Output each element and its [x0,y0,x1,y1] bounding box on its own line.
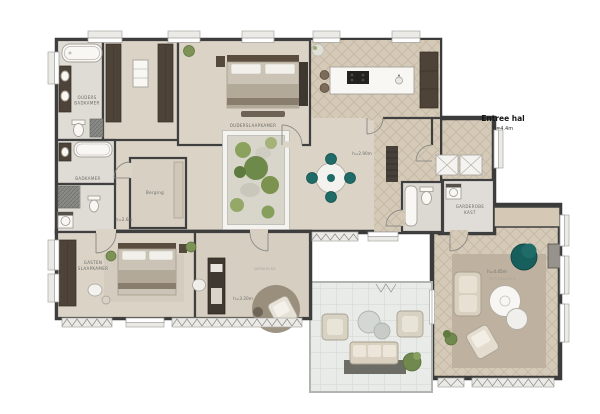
window [48,52,59,84]
window [392,31,420,43]
dining-chair [345,173,356,184]
table-centerpiece [327,174,335,182]
teal-armchair-cushion [522,244,537,259]
dining-chair [307,173,318,184]
bed-runner [118,283,176,289]
window [313,31,340,43]
bar-stool [320,71,329,80]
dining-height-label: h=2.90m [352,151,372,156]
entree-hall-label: Entree hal [481,114,525,123]
toilet-icon [90,200,99,212]
garden-bush [230,198,244,212]
garden-tree [244,156,268,180]
window [494,130,503,168]
desk-chair [193,279,206,291]
plant-icon [106,251,116,261]
faucet [398,75,400,77]
tv-sideboard [299,62,308,106]
floor-plan-drawing: Entree hal h=4.4m OUDERSLAAPKAMER OUDERS… [0,0,600,414]
garden-bush [262,206,275,219]
sofa-cushion [459,276,477,293]
burner [362,79,365,82]
desk-papers [211,264,223,272]
window [48,240,59,270]
nightstand-icon [179,244,187,253]
plant-leaf [413,352,421,360]
wall-cabinet-band [494,207,560,227]
window [126,318,164,327]
wardrobe-label-line1: GARDEROBE [456,204,485,209]
bathroom-label: BADKAMER [75,176,100,181]
round-chair [88,284,102,296]
burner [362,74,365,77]
window [88,31,122,43]
plant-icon [312,44,324,56]
storage-furniture [174,162,183,218]
storage-label: Berging [146,190,164,195]
folding-door [62,318,112,327]
plant-icon [186,242,196,252]
folding-door [312,232,358,241]
round-coffee-table [374,323,390,339]
bar-stool [320,84,329,93]
washer-panel [58,212,73,216]
folding-door [172,318,302,327]
living-room-label: WOONKAMER [489,277,516,281]
tall-cabinet [420,52,438,108]
burner [351,79,354,82]
window [368,232,398,241]
desk-papers [211,288,222,304]
office-label: WERKPLEK [254,267,276,271]
hall-height-label: h=2.6m [116,217,133,222]
burner [351,74,354,77]
sink-icon [62,148,69,157]
shower-icon [90,119,103,137]
media-niche [548,244,560,268]
courtyard-garden [223,131,290,230]
bed-headboard [118,243,176,249]
folding-door [438,378,464,387]
sink-icon [61,71,69,81]
pillow [265,64,295,74]
window [560,256,569,294]
kitchen-sink [396,77,403,84]
round-coffee-table [507,309,528,330]
plant-leaf [313,46,317,50]
plant-icon [184,46,195,57]
garden-bush [261,176,279,194]
master-bedroom-label: OUDERSLAAPKAMER [230,123,277,128]
entree-hall-height: h=4.4m [493,126,513,132]
master-bathroom-label-line2: BADKAMER [74,101,99,106]
window [560,304,569,342]
dresser-icon [133,60,148,87]
window [560,215,569,246]
toilet-tank [420,187,433,192]
living-height-label: h=4.45m [487,269,507,274]
bathtub-drain [69,52,72,55]
garden-bush [265,137,277,149]
shower-icon [58,186,80,208]
toilet-tank [88,196,100,200]
sofa-cushion [383,345,396,357]
armchair-cushion [327,319,343,335]
office-height-label: h=3.20m [233,296,253,301]
sink-icon [61,91,69,101]
bed-bench [241,111,285,117]
sofa-cushion [353,345,366,357]
guest-bedroom-label-line1: GASTEN [84,260,102,265]
folding-door [472,378,554,387]
dining-chair [326,192,337,203]
ottoman [253,307,263,317]
garden-bush [234,166,246,178]
bed-headboard [227,55,299,62]
toilet-icon [74,124,84,137]
pillow [231,64,261,74]
washer-panel [446,184,461,188]
floor-plan: Entree hal h=4.4m OUDERSLAAPKAMER OUDERS… [0,0,600,414]
plant-leaf [443,330,451,338]
master-bathroom-label-line1: OUDERS [77,95,96,100]
pillow [149,251,173,260]
armchair-cushion [402,316,418,332]
bed-runner [227,98,299,105]
window [168,31,200,43]
cooktop-icon [347,71,369,84]
side-table [102,296,110,304]
sliding-door [430,290,435,324]
sofa-cushion [459,295,477,312]
small-bathtub-icon [405,186,417,226]
guest-bedroom-label-line2: SLAAPKAMER [78,266,108,271]
toilet-icon [422,192,432,205]
shelf-unit [174,162,183,218]
dining-chair [326,154,337,165]
nightstand-icon [216,56,225,67]
sofa-cushion [368,345,381,357]
wardrobe-label-line2: KAST [464,210,476,215]
pillow [122,251,146,260]
window [48,274,59,302]
garden-bush [235,142,251,158]
garden-stone [240,183,260,197]
window [242,31,274,43]
